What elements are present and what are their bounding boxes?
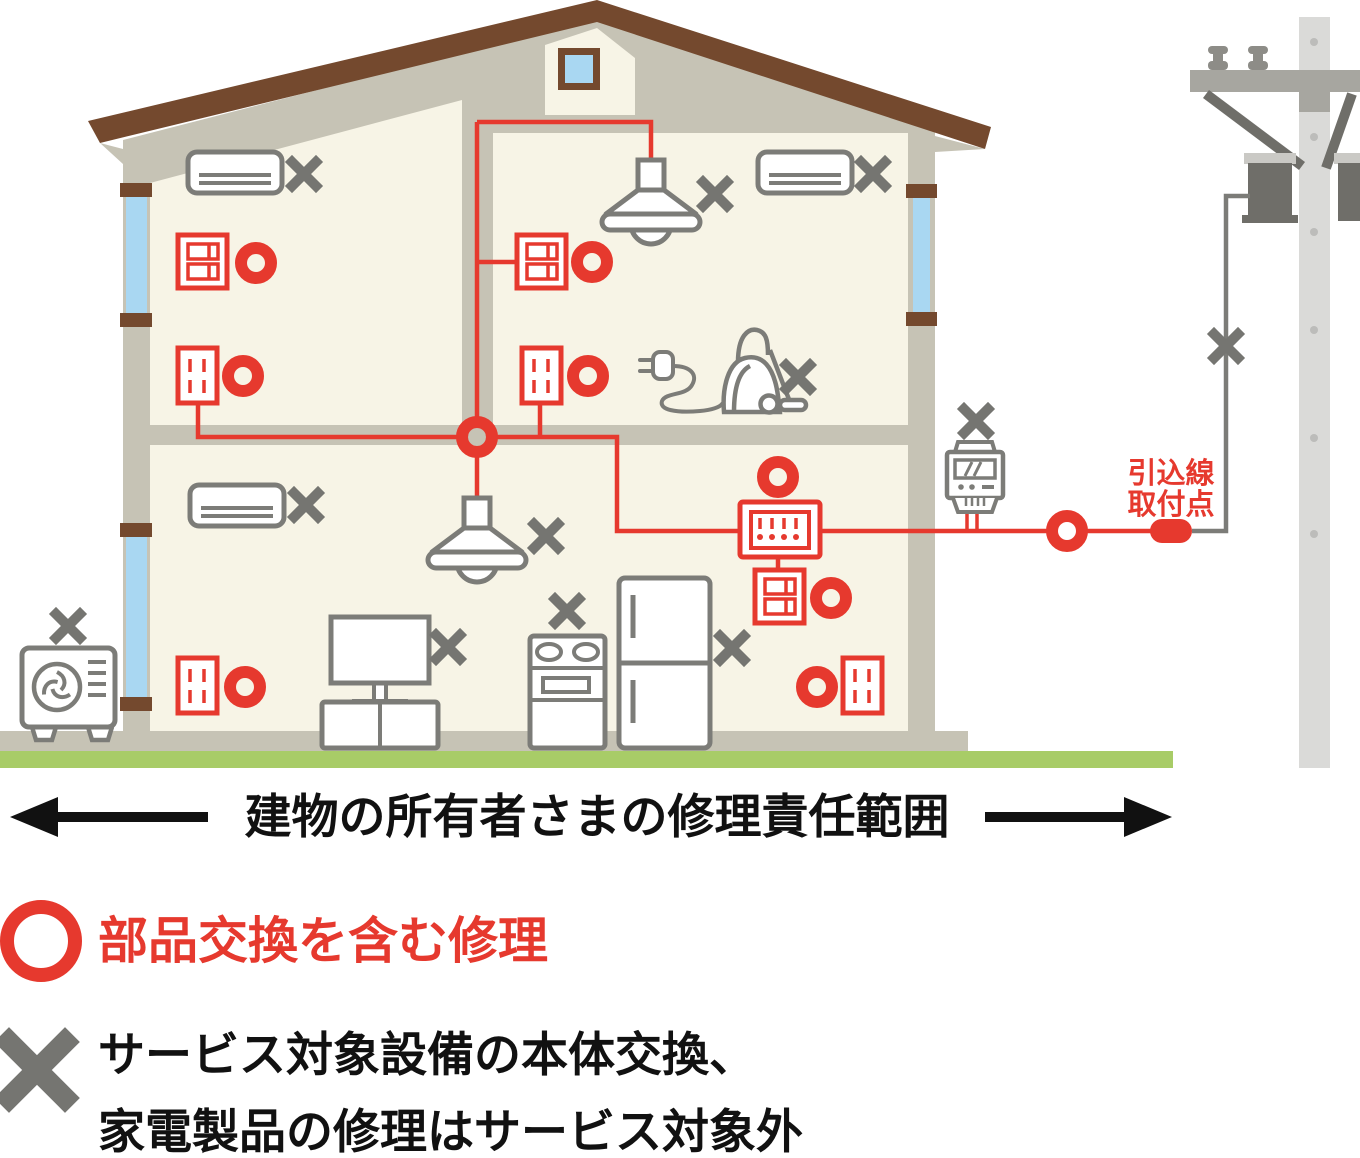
- distribution-board-icon: [740, 502, 820, 557]
- wall-ac-1f-icon: [190, 485, 284, 526]
- illustration-house-repair-scope: 引込線 取付点 建物の所有者さまの修理責任範囲 部品交換を含む修理 サービス対象…: [0, 0, 1360, 1158]
- window-2f-right-lintel: [906, 184, 937, 198]
- service-drop-label-line2: 取付点: [1127, 488, 1214, 521]
- wall-ac-2f-right-icon: [758, 152, 852, 193]
- outlet-2f-right-icon: [522, 348, 561, 403]
- pole-crossarm-mount: [1299, 92, 1330, 112]
- owner-range-label: 建物の所有者さまの修理責任範囲: [245, 790, 950, 843]
- attic-window-glass: [565, 55, 593, 83]
- legend-red-ring-icon: [7, 907, 75, 975]
- outlet-1f-left-icon: [178, 658, 217, 713]
- wall-ac-2f-left-icon: [188, 152, 282, 193]
- junction-hole: [468, 428, 486, 446]
- pole-shaft: [1299, 17, 1330, 768]
- outdoor-ac-unit-icon: [22, 648, 115, 740]
- light-switch-1f-icon: [755, 570, 804, 623]
- window-2f-right-glass: [913, 195, 930, 315]
- window-2f-right-sill: [906, 312, 937, 326]
- legend-x-icon: [9, 1042, 65, 1098]
- legend-circle-text: 部品交換を含む修理: [98, 913, 548, 969]
- stove-icon: [530, 636, 605, 748]
- legend-x-text-line1: サービス対象設備の本体交換、: [98, 1028, 756, 1081]
- light-switch-2f-left-icon: [178, 235, 227, 288]
- eave-soffit-left: [100, 143, 123, 164]
- grass-strip: [0, 751, 1173, 768]
- electric-meter-icon: [947, 442, 1003, 512]
- television-icon: [322, 617, 438, 748]
- service-drop-attachment-icon: [1150, 519, 1192, 543]
- legend: 部品交換を含む修理 サービス対象設備の本体交換、 家電製品の修理はサービス対象外: [7, 907, 803, 1158]
- pole-crossarm: [1190, 70, 1360, 92]
- window-2f-left-sill: [120, 313, 152, 327]
- ground-strip: [0, 731, 968, 751]
- utility-pole: [1190, 17, 1360, 768]
- outlet-1f-right-icon: [843, 658, 882, 713]
- window-2f-left-glass: [126, 194, 147, 316]
- legend-x-text-line2: 家電製品の修理はサービス対象外: [98, 1105, 803, 1158]
- light-switch-2f-right-icon: [517, 235, 566, 288]
- x-mark-outdoor-ac: [56, 614, 80, 638]
- window-1f-left-sill: [120, 697, 152, 711]
- window-2f-left-lintel: [120, 183, 152, 197]
- window-1f-left-lintel: [120, 523, 152, 537]
- refrigerator-icon: [619, 578, 710, 748]
- insulator-icon: [1208, 46, 1268, 70]
- window-1f-left-glass: [126, 534, 147, 700]
- service-drop-label-line1: 引込線: [1127, 456, 1214, 490]
- outlet-2f-left-icon: [178, 348, 217, 403]
- x-mark-meter: [964, 409, 988, 433]
